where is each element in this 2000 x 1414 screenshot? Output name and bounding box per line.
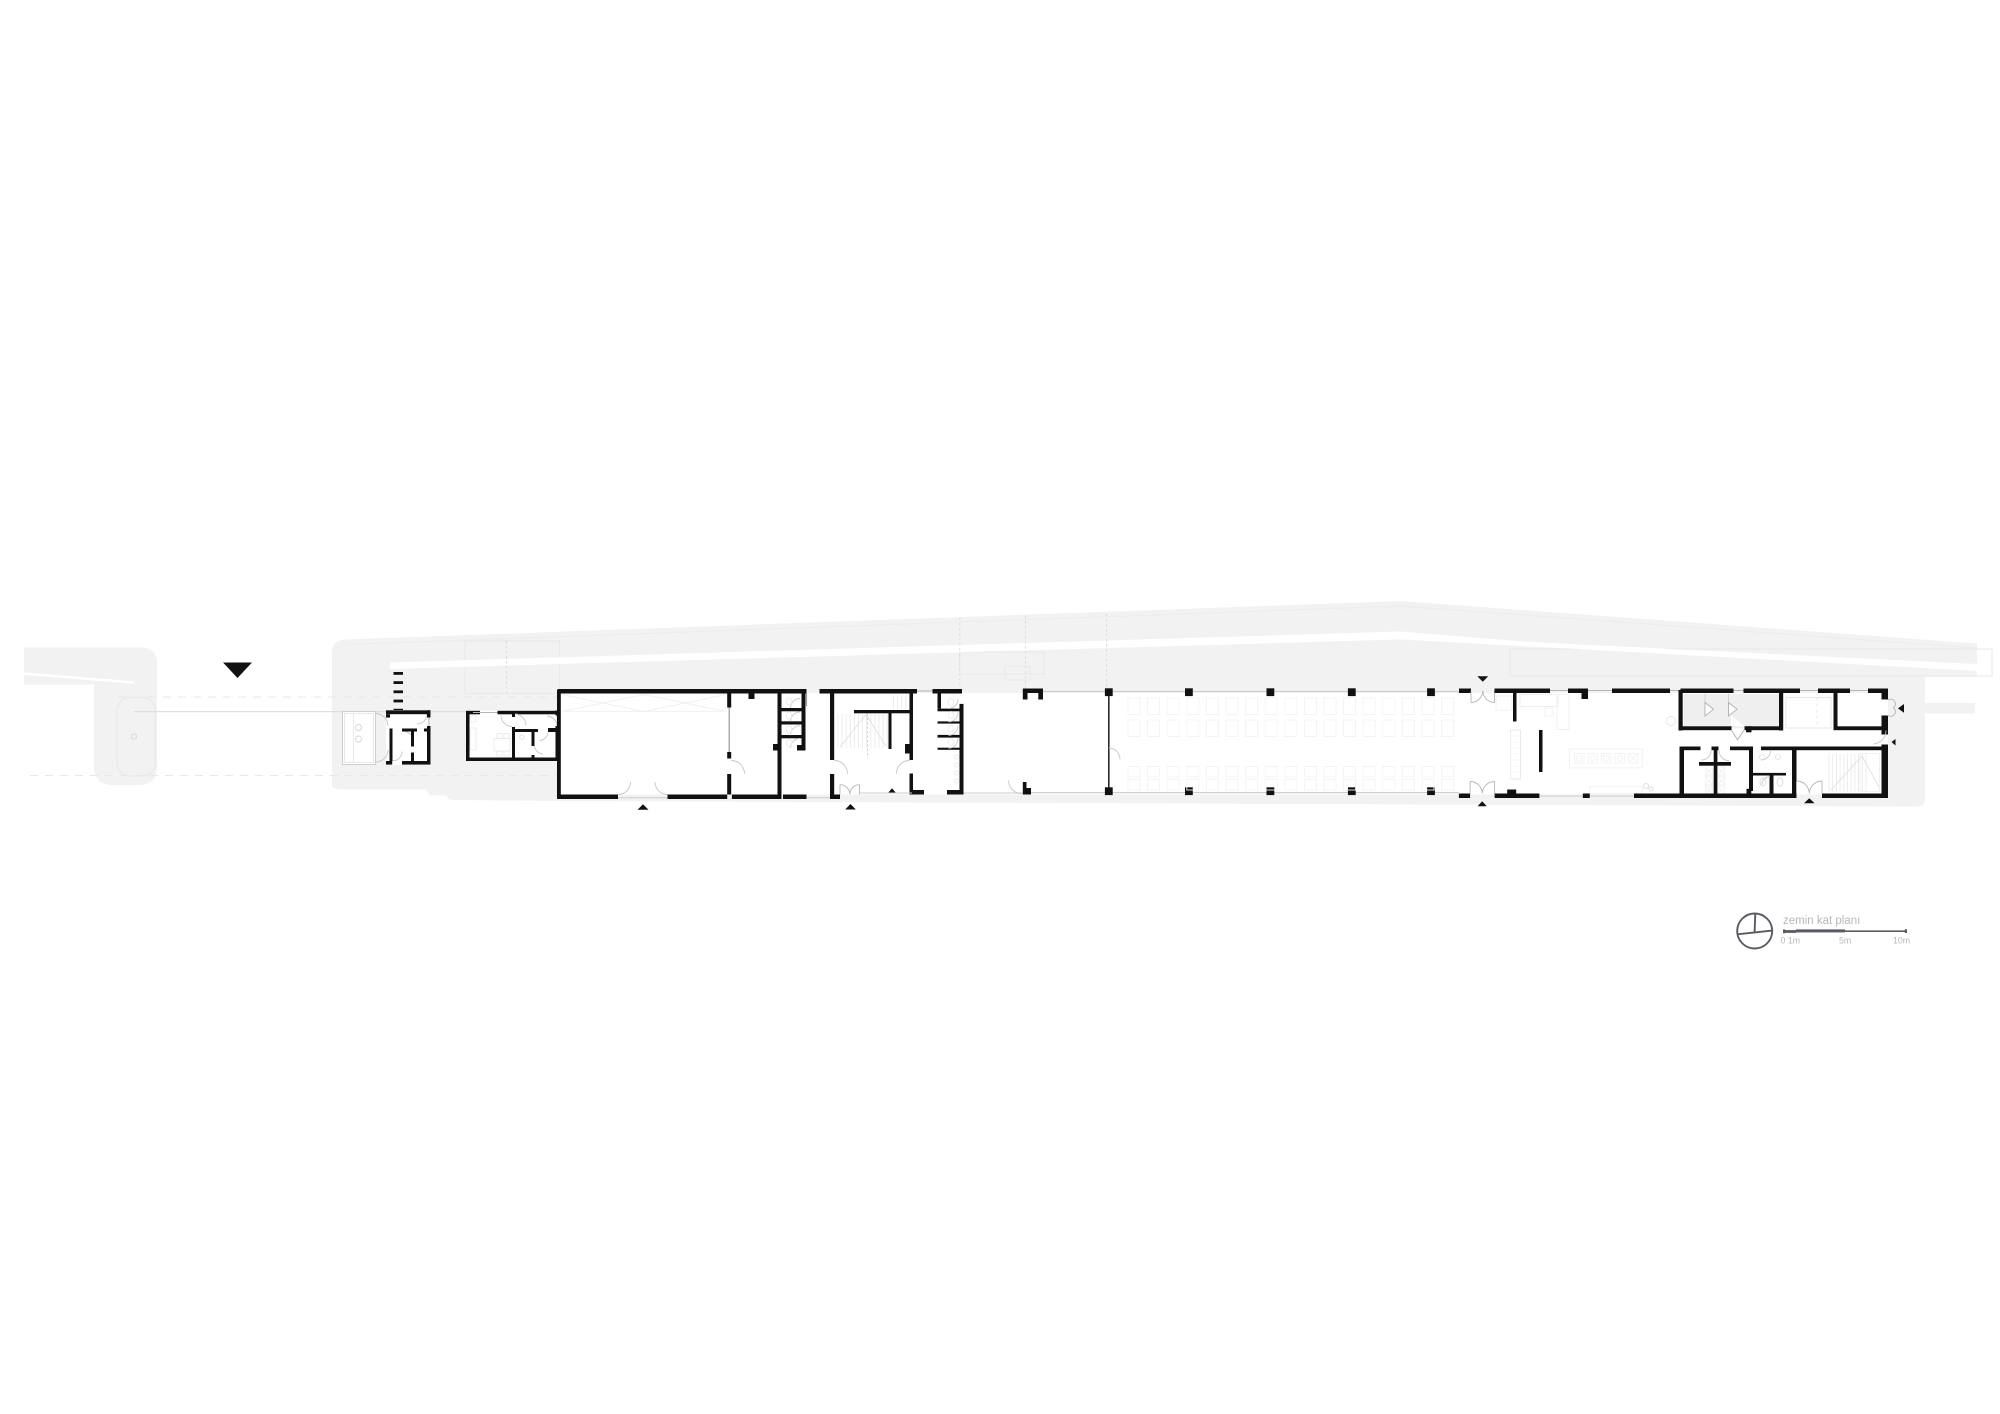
svg-text:0 1m: 0 1m xyxy=(1781,936,1801,946)
svg-text:5m: 5m xyxy=(1839,936,1851,946)
svg-text:10m: 10m xyxy=(1893,936,1910,946)
svg-text:zemin kat planı: zemin kat planı xyxy=(1783,915,1860,927)
